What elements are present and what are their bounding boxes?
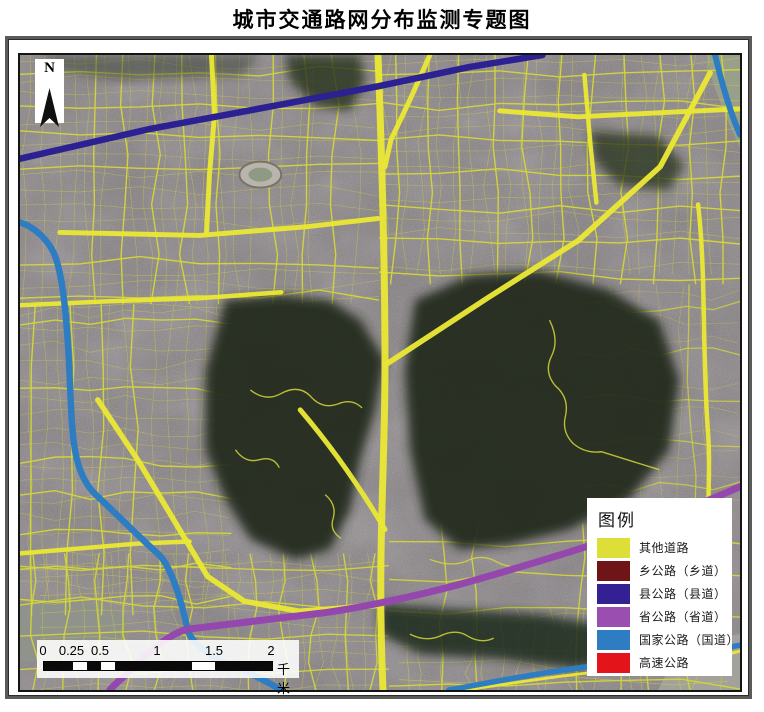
legend-label: 县公路（县道）: [639, 585, 727, 602]
scale-tick-label: 1.5: [205, 643, 223, 658]
page-title: 城市交通路网分布监测专题图: [0, 4, 764, 34]
legend-title: 图例: [598, 506, 724, 531]
legend-label: 乡公路（乡道）: [639, 562, 727, 579]
legend-item: 省公路（省道）: [597, 605, 724, 628]
legend-swatch: [597, 653, 630, 673]
legend-label: 高速公路: [639, 654, 689, 671]
scale-bar-segment: [192, 662, 215, 670]
north-arrow: N: [35, 59, 64, 123]
legend-item: 其他道路: [597, 536, 724, 559]
legend-swatch: [597, 584, 630, 604]
legend-item: 国家公路（国道）: [597, 628, 724, 651]
scale-bar-segment: [115, 662, 192, 670]
scale-bar-labels: 00.250.511.52: [43, 643, 271, 659]
legend-item: 高速公路: [597, 651, 724, 674]
scale-bar-segment: [73, 662, 87, 670]
legend-item: 县公路（县道）: [597, 582, 724, 605]
scale-bar: 00.250.511.52 千米: [37, 640, 299, 678]
scale-bar-segment: [101, 662, 115, 670]
legend-swatch: [597, 538, 630, 558]
legend-swatch: [597, 607, 630, 627]
scale-bar-track: [43, 661, 273, 671]
stadium-field: [248, 168, 272, 182]
scale-bar-segment: [87, 662, 101, 670]
scale-bar-unit: 千米: [277, 659, 299, 697]
scale-tick-label: 0: [39, 643, 46, 658]
stadium: [239, 162, 281, 188]
outer-frame: N 图例 其他道路乡公路（乡道）县公路（县道）省公路（省道）国家公路（国道）高速…: [5, 36, 752, 699]
scale-tick-label: 2: [267, 643, 274, 658]
scale-tick-label: 0.25: [59, 643, 84, 658]
legend-label: 其他道路: [639, 539, 689, 556]
scale-tick-label: 1: [153, 643, 160, 658]
legend-item: 乡公路（乡道）: [597, 559, 724, 582]
north-arrow-icon: [35, 77, 64, 141]
legend-swatch: [597, 561, 630, 581]
scale-bar-segment: [215, 662, 272, 670]
legend-label: 国家公路（国道）: [639, 631, 739, 648]
legend-swatch: [597, 630, 630, 650]
thematic-map-page: 城市交通路网分布监测专题图: [0, 0, 764, 712]
legend: 图例 其他道路乡公路（乡道）县公路（县道）省公路（省道）国家公路（国道）高速公路: [587, 498, 732, 676]
north-label: N: [35, 59, 64, 77]
map-frame: N 图例 其他道路乡公路（乡道）县公路（县道）省公路（省道）国家公路（国道）高速…: [18, 53, 742, 692]
scale-bar-segment: [44, 662, 73, 670]
scale-tick-label: 0.5: [91, 643, 109, 658]
legend-label: 省公路（省道）: [639, 608, 727, 625]
legend-items: 其他道路乡公路（乡道）县公路（县道）省公路（省道）国家公路（国道）高速公路: [597, 536, 724, 674]
